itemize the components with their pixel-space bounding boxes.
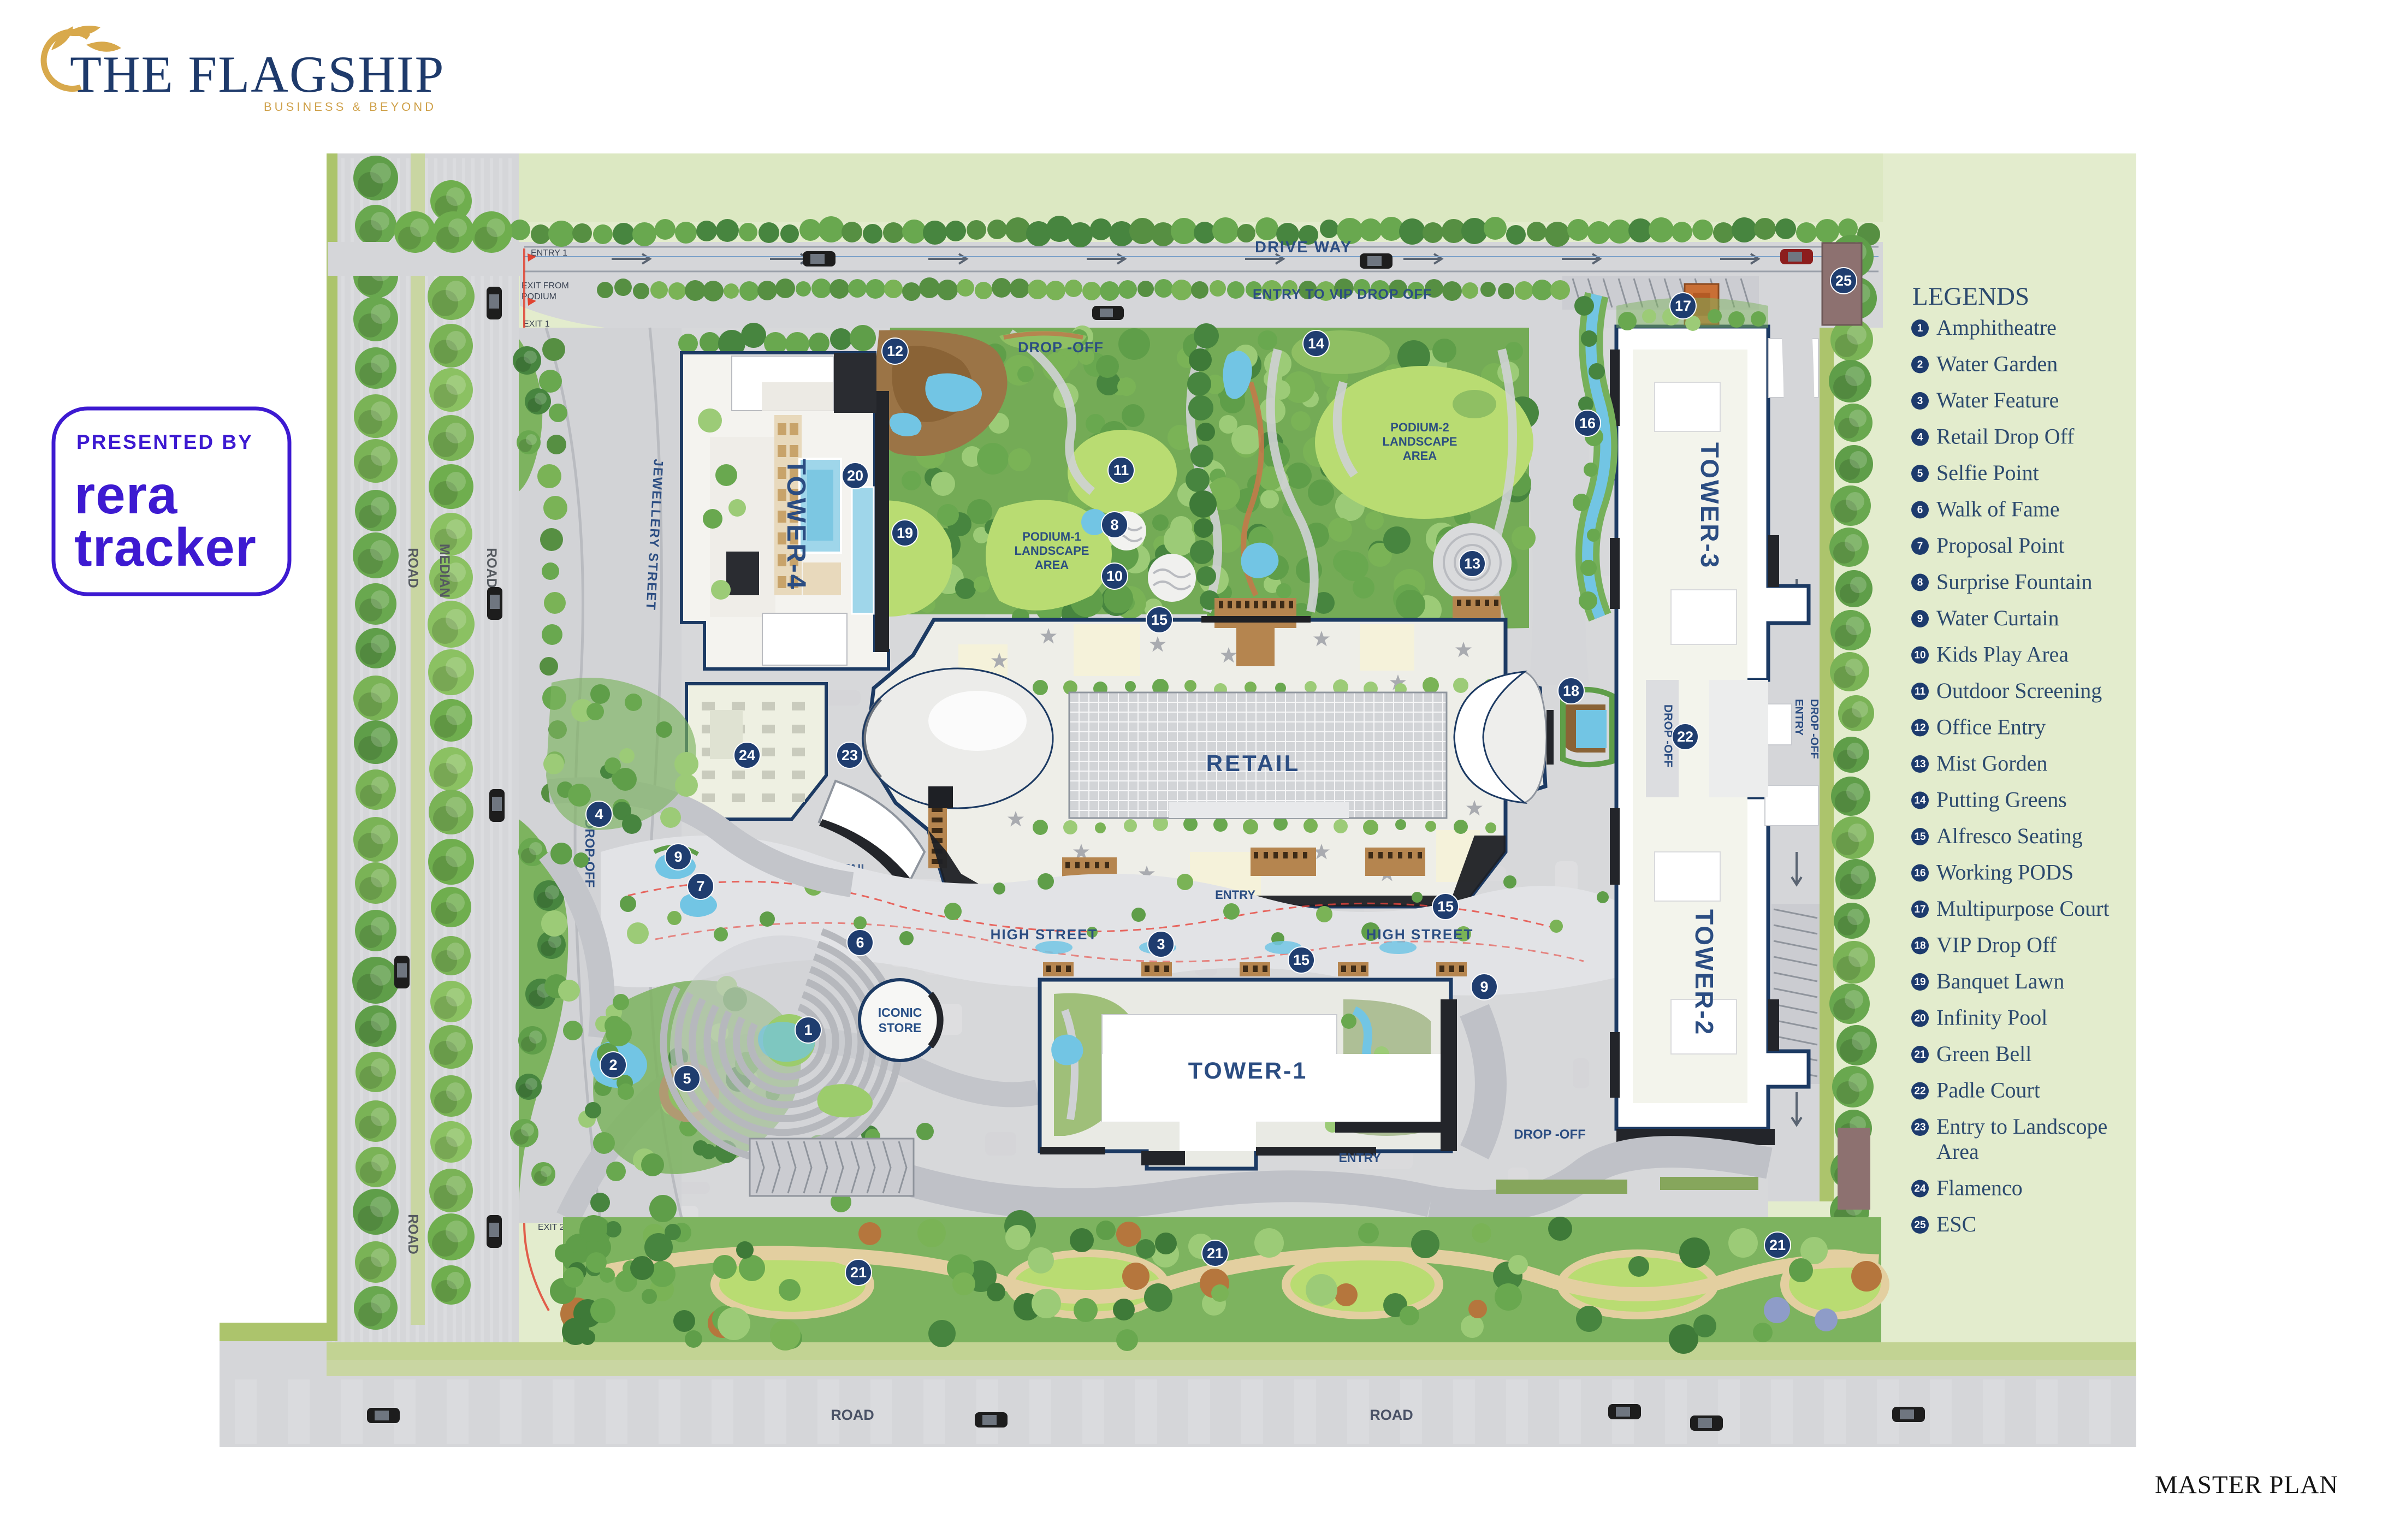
svg-text:PODIUM-1: PODIUM-1 [1022, 530, 1081, 543]
svg-text:14: 14 [1308, 335, 1324, 352]
svg-text:2: 2 [1917, 359, 1923, 371]
svg-text:Banquet Lawn: Banquet Lawn [1936, 969, 2064, 993]
svg-text:ROAD: ROAD [831, 1407, 874, 1423]
svg-text:RETAIL: RETAIL [1206, 750, 1301, 776]
svg-text:9: 9 [674, 849, 682, 865]
svg-text:21: 21 [850, 1264, 867, 1281]
svg-text:LANDSCAPE: LANDSCAPE [1015, 544, 1089, 558]
svg-text:Surprise Fountain: Surprise Fountain [1936, 570, 2093, 594]
svg-text:Entry to Landscope: Entry to Landscope [1936, 1114, 2107, 1139]
svg-text:Water Curtain: Water Curtain [1936, 606, 2059, 630]
svg-text:20: 20 [847, 467, 863, 484]
svg-text:5: 5 [683, 1070, 691, 1087]
svg-text:16: 16 [1579, 415, 1596, 431]
svg-text:VIP Drop Off: VIP Drop Off [1936, 933, 2057, 957]
svg-text:Office Entry: Office Entry [1936, 715, 2046, 739]
svg-text:LEGENDS: LEGENDS [1912, 282, 2029, 311]
svg-text:DRIVE WAY: DRIVE WAY [1255, 239, 1352, 256]
svg-text:ENTRY 1: ENTRY 1 [531, 248, 567, 258]
svg-text:12: 12 [887, 343, 903, 359]
svg-text:Outdoor Screening: Outdoor Screening [1936, 678, 2102, 703]
svg-text:DROP -OFF: DROP -OFF [1018, 339, 1104, 356]
svg-text:21: 21 [1914, 1049, 1926, 1061]
svg-text:7: 7 [696, 878, 704, 895]
svg-text:HIGH STREET: HIGH STREET [1366, 926, 1474, 943]
svg-text:EXIT 2: EXIT 2 [538, 1223, 565, 1232]
svg-text:STORE: STORE [879, 1021, 922, 1035]
svg-text:EXIT 1: EXIT 1 [523, 319, 550, 329]
svg-text:Amphitheatre: Amphitheatre [1936, 315, 2057, 340]
svg-text:16: 16 [1914, 868, 1925, 879]
svg-text:PODIUM: PODIUM [522, 292, 556, 301]
svg-text:13: 13 [1464, 555, 1480, 572]
svg-text:ENTRY: ENTRY [1793, 699, 1805, 736]
svg-text:TOWER-4: TOWER-4 [781, 459, 810, 590]
svg-text:TOWER-2: TOWER-2 [1690, 909, 1719, 1036]
svg-text:10: 10 [1914, 650, 1925, 661]
svg-text:Kids Play Area: Kids Play Area [1936, 642, 2069, 667]
svg-text:Putting Greens: Putting Greens [1936, 787, 2067, 812]
svg-text:Proposal Point: Proposal Point [1936, 533, 2064, 558]
svg-text:3: 3 [1917, 395, 1923, 407]
svg-text:17: 17 [1675, 298, 1691, 314]
svg-text:ROAD: ROAD [405, 548, 420, 588]
svg-text:AREA: AREA [1403, 449, 1437, 463]
svg-text:PRESENTED BY: PRESENTED BY [76, 431, 253, 453]
svg-text:13: 13 [1914, 759, 1925, 770]
svg-text:10: 10 [1106, 568, 1123, 584]
svg-text:EXIT FROM: EXIT FROM [522, 281, 569, 291]
svg-text:1: 1 [804, 1022, 812, 1038]
svg-text:5: 5 [1917, 468, 1923, 479]
svg-text:23: 23 [842, 747, 858, 763]
svg-text:AREA: AREA [1035, 558, 1069, 572]
svg-text:4: 4 [595, 806, 603, 822]
svg-text:THE FLAGSHIP: THE FLAGSHIP [70, 45, 445, 103]
svg-text:18: 18 [1563, 683, 1579, 699]
svg-text:ENTRY TO VIP DROP OFF: ENTRY TO VIP DROP OFF [1253, 287, 1432, 302]
svg-text:12: 12 [1914, 722, 1925, 734]
svg-text:Infinity Pool: Infinity Pool [1936, 1005, 2047, 1030]
svg-text:22: 22 [1914, 1086, 1925, 1097]
svg-text:Working PODS: Working PODS [1936, 860, 2073, 885]
svg-text:18: 18 [1914, 940, 1925, 952]
svg-text:BUSINESS & BEYOND: BUSINESS & BEYOND [264, 100, 436, 114]
svg-text:9: 9 [1480, 979, 1488, 995]
svg-text:TOWER-1: TOWER-1 [1188, 1058, 1308, 1084]
svg-text:PODIUM-2: PODIUM-2 [1390, 420, 1449, 434]
svg-text:ROAD: ROAD [405, 1214, 420, 1254]
svg-text:20: 20 [1914, 1013, 1925, 1024]
svg-text:23: 23 [1914, 1122, 1925, 1133]
svg-text:3: 3 [1157, 936, 1165, 952]
svg-text:Retail Drop Off: Retail Drop Off [1936, 424, 2075, 449]
svg-text:6: 6 [856, 934, 864, 951]
svg-text:15: 15 [1914, 831, 1926, 843]
svg-text:15: 15 [1293, 952, 1309, 968]
svg-text:Flamenco: Flamenco [1936, 1176, 2023, 1200]
svg-text:Mist Gorden: Mist Gorden [1936, 751, 2047, 775]
svg-text:21: 21 [1769, 1237, 1786, 1253]
svg-text:Area: Area [1936, 1139, 1979, 1164]
svg-text:MASTER PLAN: MASTER PLAN [2155, 1471, 2338, 1499]
svg-text:TOWER-3: TOWER-3 [1696, 442, 1724, 569]
svg-text:Alfresco Seating: Alfresco Seating [1936, 824, 2083, 848]
svg-text:8: 8 [1917, 577, 1923, 589]
svg-text:2: 2 [609, 1057, 617, 1073]
svg-text:tracker: tracker [74, 517, 257, 577]
svg-text:Water Feature: Water Feature [1936, 388, 2059, 412]
svg-text:4: 4 [1917, 432, 1923, 443]
svg-text:25: 25 [1835, 273, 1852, 289]
svg-text:Selfie Point: Selfie Point [1936, 460, 2039, 485]
svg-text:6: 6 [1917, 505, 1923, 516]
svg-text:Padle Court: Padle Court [1936, 1078, 2040, 1103]
svg-text:15: 15 [1437, 898, 1454, 915]
svg-text:14: 14 [1914, 795, 1926, 807]
svg-text:Water Garden: Water Garden [1936, 352, 2058, 376]
svg-text:19: 19 [897, 525, 913, 541]
svg-text:ICONIC: ICONIC [878, 1005, 922, 1020]
svg-text:ENTRY: ENTRY [1215, 888, 1255, 902]
svg-text:22: 22 [1677, 728, 1693, 745]
svg-text:15: 15 [1151, 612, 1168, 628]
svg-text:DROP -OFF: DROP -OFF [1514, 1127, 1586, 1142]
svg-text:Green Bell: Green Bell [1936, 1041, 2031, 1066]
svg-text:11: 11 [1113, 462, 1129, 478]
svg-text:24: 24 [739, 747, 755, 763]
svg-text:HIGH STREET: HIGH STREET [991, 926, 1098, 943]
svg-text:11: 11 [1915, 686, 1926, 697]
svg-text:9: 9 [1917, 613, 1923, 625]
svg-text:ESC: ESC [1936, 1212, 1976, 1236]
svg-text:17: 17 [1914, 904, 1925, 915]
svg-text:LANDSCAPE: LANDSCAPE [1383, 435, 1457, 448]
svg-text:DROP -OFF: DROP -OFF [1808, 699, 1820, 759]
svg-text:ROAD: ROAD [484, 548, 499, 588]
svg-text:8: 8 [1110, 517, 1118, 533]
svg-text:Walk of Fame: Walk of Fame [1936, 497, 2060, 522]
svg-text:19: 19 [1914, 976, 1925, 988]
svg-text:21: 21 [1207, 1245, 1223, 1261]
svg-text:24: 24 [1914, 1183, 1926, 1195]
svg-text:MEDIAN: MEDIAN [437, 544, 452, 598]
svg-text:ROAD: ROAD [1370, 1407, 1413, 1423]
svg-text:Multipurpose Court: Multipurpose Court [1936, 896, 2110, 921]
svg-text:rera: rera [74, 465, 178, 525]
svg-text:1: 1 [1917, 323, 1923, 334]
svg-text:ENTRY: ENTRY [1338, 1151, 1380, 1165]
svg-text:25: 25 [1914, 1219, 1926, 1231]
svg-text:7: 7 [1917, 541, 1923, 552]
